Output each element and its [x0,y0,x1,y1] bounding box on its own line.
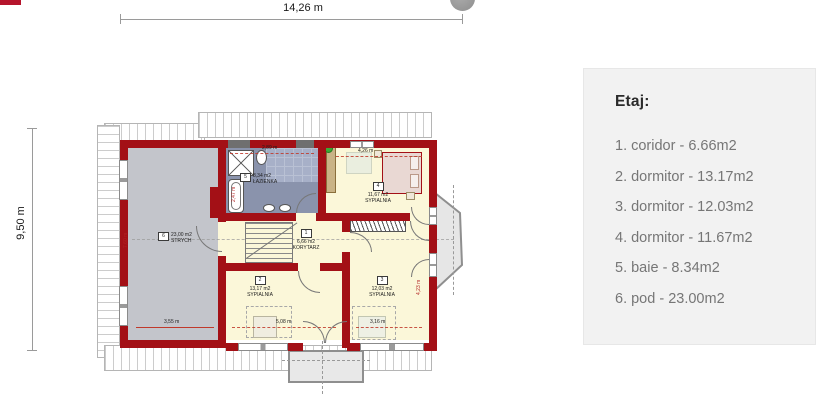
wall [326,213,410,221]
legend-item: 4. dormitor - 11.67m2 [615,231,815,246]
window [238,343,288,351]
wall [120,140,437,148]
room-label-corridor: 1 6,66 m2 KORYTARZ [284,229,328,251]
legend-panel: Etaj: 1. coridor - 6.66m2 2. dormitor - … [583,68,816,345]
height-dimension-label: 9,50 m [15,188,27,258]
closet-hangers [350,220,406,232]
room-label-bath: 5 8,34 m2 ŁAZIENKA [240,173,277,185]
wall [218,213,296,221]
legend-item: 3. dormitor - 12.03m2 [615,200,815,215]
dim-strych-bottom: 3,55 m [164,319,179,325]
wall [218,148,226,222]
window [119,160,128,200]
legend-item: 6. pod - 23.00m2 [615,292,815,307]
sink [263,204,275,212]
dim-room3-bottom: 3,16 m [370,319,385,325]
wall [120,340,226,348]
room-name: ŁAZIENKA [253,179,277,185]
dim-line [230,153,314,154]
header-accent-bar [0,0,21,5]
window [350,141,374,148]
dormer-roof [435,188,469,296]
window [429,253,437,277]
dim-room3-side: 4,23 m [416,280,422,295]
room-name: SYPIALNIA [369,292,395,298]
room-number: 3 [377,276,388,285]
room-name: KORYTARZ [293,245,320,251]
room-number: 4 [373,182,384,191]
dim-line [136,327,214,328]
dim-tub: 2,47 m [231,187,237,202]
legend-item: 5. baie - 8.34m2 [615,261,815,276]
dim-strych-side: 7,60 m [123,233,129,248]
wall [342,221,350,232]
wall [226,263,298,271]
legend-list: 1. coridor - 6.66m2 2. dormitor - 13.17m… [615,139,815,307]
room-label-bedroom2: 2 13,17 m2 SYPIALNIA [232,276,288,298]
dim-room2-bottom: 5,08 m [276,319,291,325]
wall [318,148,326,221]
chimney-block [228,140,250,148]
room-number: 2 [255,276,266,285]
window [119,286,128,326]
room-name: STRYCH [171,238,191,244]
pillow [410,174,419,188]
floorplan-page: 14,26 m 9,50 m [0,0,838,407]
balcony [288,350,364,383]
dormer-axis [453,185,454,295]
roof-band-left [97,125,120,358]
nav-circle-button[interactable] [450,0,475,11]
window [360,343,424,351]
height-dimension-line [32,128,33,350]
sink [279,204,291,212]
legend-item: 2. dormitor - 13.17m2 [615,170,815,185]
room-name: SYPIALNIA [247,292,273,298]
room-number: 5 [240,173,251,182]
nightstand [406,192,415,200]
width-dimension-label: 14,26 m [263,2,343,14]
legend-item: 1. coridor - 6.66m2 [615,139,815,154]
window [429,207,437,225]
wall [226,343,238,351]
wall [320,263,350,271]
balcony-overhang [282,360,370,361]
room-name: SYPIALNIA [365,198,391,204]
wall [288,343,303,351]
room-number: 6 [158,232,169,241]
dim-room4-top: 4,26 m [358,148,373,154]
wall [210,187,218,218]
wall [429,225,437,253]
chimney-block [296,140,314,148]
wall [429,140,437,207]
roof-band-top [198,112,432,138]
dim-bath-top: 2,89 m [262,145,277,151]
width-dimension-line [120,19,462,20]
wardrobe [326,147,336,193]
wall [429,277,437,348]
dim-line [356,327,422,328]
dim-line [336,156,422,157]
room-label-bedroom3: 3 12,03 m2 SYPIALNIA [354,276,410,298]
legend-title: Etaj: [615,93,815,111]
wall [218,256,226,340]
dim-line [232,327,336,328]
room-label-bedroom4: 4 11,67 m2 SYPIALNIA [350,182,406,204]
room-number: 1 [301,229,312,238]
pillow [410,156,419,170]
room-label-strych: 6 23,00 m2 STRYCH [158,232,192,244]
